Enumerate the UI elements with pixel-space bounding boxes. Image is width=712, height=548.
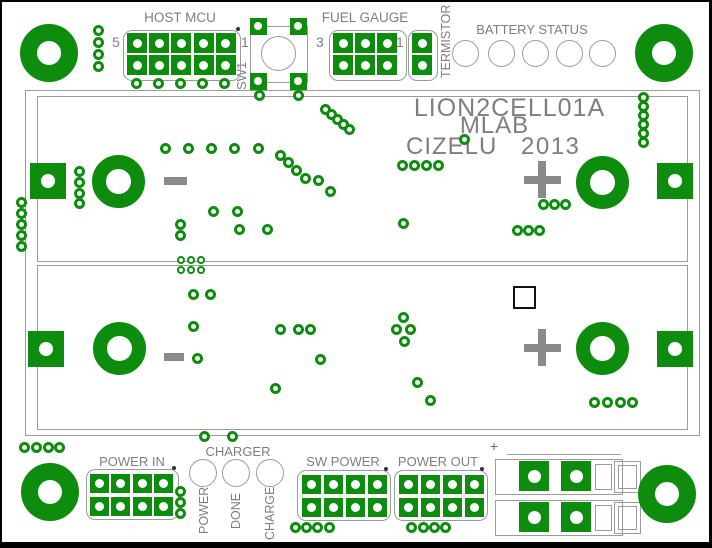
power-in-header-pad-hole <box>138 502 147 511</box>
host-mcu-header-pad <box>127 33 147 53</box>
smd-part-outline <box>513 286 536 309</box>
via <box>229 143 240 154</box>
edge-pad <box>657 331 693 367</box>
termistor-header-pad <box>412 55 432 75</box>
charger-label: CHARGER <box>194 445 282 459</box>
via <box>253 143 264 154</box>
cell2-minus-symbol <box>164 353 184 361</box>
via-small <box>187 256 195 264</box>
battery-status-led <box>556 40 583 67</box>
plus-v-bar <box>538 329 546 366</box>
power-out-header-pin1-dot <box>480 467 484 471</box>
power-in-header-pad <box>111 497 130 516</box>
host-mcu-header-pad-hole <box>133 61 142 70</box>
edge-pad <box>657 163 693 199</box>
via <box>93 37 104 48</box>
terminal-pad-hole <box>528 470 541 483</box>
via-small <box>197 266 205 274</box>
via <box>429 522 440 533</box>
via <box>160 143 171 154</box>
power-in-header-pad <box>154 474 173 493</box>
fuel-gauge-header-pad <box>355 55 375 75</box>
power-out-header-pad-hole <box>426 480 435 489</box>
sw1-pad <box>250 18 267 35</box>
via <box>549 199 560 210</box>
via <box>131 78 142 89</box>
power-out-header-pad-hole <box>448 480 457 489</box>
sw1-button <box>261 36 296 71</box>
via <box>199 431 210 442</box>
cell1-minus-symbol <box>164 177 187 185</box>
via-small <box>177 266 185 274</box>
mounting-hole <box>21 463 79 521</box>
sw-power-header-pad <box>324 498 343 517</box>
via <box>54 442 65 453</box>
charger-led <box>189 459 217 487</box>
host-mcu-header-pad-hole <box>155 39 164 48</box>
via <box>425 395 436 406</box>
via <box>262 224 273 235</box>
fuel-gauge-label: FUEL GAUGE <box>314 11 416 26</box>
via <box>175 486 186 497</box>
terminal-plus-label: + <box>490 439 498 454</box>
via <box>188 321 199 332</box>
via <box>208 206 219 217</box>
cell2-plus-symbol <box>524 329 561 366</box>
power-in-label: POWER IN <box>87 455 177 469</box>
via <box>325 186 336 197</box>
via <box>175 78 186 89</box>
edge-pad-hole <box>668 342 682 356</box>
via <box>615 397 626 408</box>
terminal-block-top-line <box>507 454 621 455</box>
termistor-label: TERMISTOR <box>439 5 453 78</box>
power-in-header-pad <box>90 497 109 516</box>
fuel-gauge-header-pad <box>333 33 353 53</box>
via <box>409 160 420 171</box>
via <box>538 199 549 210</box>
sw-power-header-pad <box>302 475 321 494</box>
via <box>523 225 534 236</box>
terminal-pad <box>561 461 591 491</box>
via <box>16 230 27 241</box>
power-out-header-pad <box>399 498 418 517</box>
edge-pad <box>28 331 64 367</box>
edge-pad-hole <box>39 342 53 356</box>
power-out-header-pad-hole <box>470 503 479 512</box>
termistor-header-pad-hole <box>418 39 427 48</box>
host-mcu-header-pin1-dot <box>236 27 240 31</box>
host-mcu-header-pad <box>216 33 236 53</box>
battery-status-led <box>452 40 479 67</box>
via <box>406 522 417 533</box>
via <box>254 90 265 101</box>
via <box>405 324 416 335</box>
host-mcu-header-pad-hole <box>177 61 186 70</box>
sw-power-header-pad-hole <box>351 480 360 489</box>
sw1-pad <box>290 18 307 35</box>
host-mcu-header-pad-hole <box>155 61 164 70</box>
via <box>175 497 186 508</box>
via <box>305 324 316 335</box>
sw-power-header-pad-hole <box>351 503 360 512</box>
fuel-gauge-header-pad-hole <box>339 39 348 48</box>
via <box>589 397 600 408</box>
via <box>74 166 85 177</box>
power-in-header-pad <box>111 474 130 493</box>
via <box>74 177 85 188</box>
host-mcu-header-pad-hole <box>133 39 142 48</box>
via <box>16 197 27 208</box>
fuel-gauge-header-pad <box>377 55 397 75</box>
sw1-pad-hole <box>254 22 262 30</box>
host-mcu-header-pad <box>149 33 169 53</box>
via <box>183 143 194 154</box>
via-small <box>197 256 205 264</box>
pcb-board-view: HOST MCU 5 1 SW1 FUEL GAUGE 3 1 TERMISTO… <box>0 0 712 548</box>
battery-status-led <box>488 40 515 67</box>
terminal-pad <box>519 502 549 532</box>
mounting-hole <box>635 24 693 82</box>
charger-led-power-label: POWER <box>197 487 211 534</box>
battery-status-led <box>522 40 549 67</box>
via <box>205 289 216 300</box>
host-mcu-header-pad <box>194 55 214 75</box>
charger-led <box>256 459 284 487</box>
fuel-gauge-header-pad <box>333 55 353 75</box>
edge-pad-hole <box>668 174 682 188</box>
sw1-pad-hole <box>294 77 302 85</box>
terminal-pad-hole <box>570 470 583 483</box>
via <box>43 442 54 453</box>
terminal-pad <box>561 502 591 532</box>
via <box>638 137 649 148</box>
via <box>275 324 286 335</box>
sw-power-header-pad <box>346 475 365 494</box>
sw-power-header-pad-hole <box>373 503 382 512</box>
host-mcu-header-pad <box>194 33 214 53</box>
power-in-header-pad <box>133 474 152 493</box>
mounting-hole <box>638 465 696 523</box>
sw-power-header-pad <box>346 498 365 517</box>
cell-terminal-pad <box>576 322 629 375</box>
via <box>188 289 199 300</box>
host-mcu-header-pad <box>171 55 191 75</box>
via <box>270 383 281 394</box>
sw1-pad-hole <box>294 22 302 30</box>
sw-power-header-pad-hole <box>307 480 316 489</box>
fuel-gauge-header-pad <box>377 33 397 53</box>
power-out-header-pad <box>465 475 484 494</box>
via <box>324 522 335 533</box>
termistor-header-pad-hole <box>418 61 427 70</box>
via <box>293 90 304 101</box>
terminal-block-slot <box>595 464 612 490</box>
power-in-header-pad <box>154 497 173 516</box>
via <box>560 199 571 210</box>
terminal-pad <box>519 461 549 491</box>
power-in-header-pad-hole <box>116 502 125 511</box>
via <box>397 160 408 171</box>
via <box>227 431 238 442</box>
power-out-header-pad-hole <box>470 480 479 489</box>
via <box>74 198 85 209</box>
via-small <box>177 256 185 264</box>
host-mcu-header-pad-hole <box>177 39 186 48</box>
sw-power-header-pad-hole <box>373 480 382 489</box>
host-mcu-header-pad <box>216 55 236 75</box>
edge-pad <box>30 163 66 199</box>
sw-power-header-pad-hole <box>329 503 338 512</box>
via <box>421 160 432 171</box>
mounting-hole <box>20 24 78 82</box>
sw-power-header-pin1-dot <box>384 467 388 471</box>
charger-led-charge-label: CHARGE <box>263 487 277 540</box>
via <box>433 160 444 171</box>
power-in-header-pad <box>133 497 152 516</box>
power-out-header-pad-hole <box>426 503 435 512</box>
via <box>16 241 27 252</box>
cell-terminal-pad <box>92 155 145 208</box>
author-text: CIZELU <box>406 135 497 159</box>
power-out-header-pad <box>443 475 462 494</box>
sw-power-header-pad <box>324 475 343 494</box>
via <box>175 508 186 519</box>
battery-status-led <box>589 40 616 67</box>
via-small <box>187 266 195 274</box>
host-mcu-header-pad-hole <box>221 61 230 70</box>
via <box>313 175 324 186</box>
via <box>93 61 104 72</box>
via <box>412 377 423 388</box>
terminal-block-slot <box>595 505 612 531</box>
host-mcu-label: HOST MCU <box>122 11 238 26</box>
via <box>312 522 323 533</box>
power-out-header-pad-hole <box>404 480 413 489</box>
termistor-header-pad <box>412 33 432 53</box>
via <box>16 208 27 219</box>
sw-power-header-pad-hole <box>329 480 338 489</box>
host-mcu-pin5-label: 5 <box>112 35 120 50</box>
power-out-header-pad <box>465 498 484 517</box>
host-mcu-header-pad-hole <box>199 39 208 48</box>
power-out-header-pad-hole <box>404 503 413 512</box>
sw1-pad <box>290 73 307 90</box>
sw-power-header-pad-hole <box>307 503 316 512</box>
via <box>219 78 230 89</box>
fuel-gauge-header-pad-hole <box>361 39 370 48</box>
power-out-header-pad <box>421 475 440 494</box>
power-out-header-pad <box>421 498 440 517</box>
power-out-header-pad-hole <box>448 503 457 512</box>
via <box>627 397 638 408</box>
terminal-pad-hole <box>570 511 583 524</box>
power-in-header-pin1-dot <box>172 466 176 470</box>
via <box>290 522 301 533</box>
power-in-header-pad-hole <box>159 479 168 488</box>
plus-v-bar <box>538 161 546 198</box>
host-mcu-header-pad <box>127 55 147 75</box>
fuel-gauge-header-pad-hole <box>383 39 392 48</box>
via <box>175 230 186 241</box>
sw-power-header-pad <box>368 475 387 494</box>
via <box>399 336 410 347</box>
sw-power-header-pad <box>302 498 321 517</box>
sw1-pad <box>250 73 267 90</box>
cell-terminal-pad <box>576 156 629 209</box>
via <box>512 225 523 236</box>
year-text: 2013 <box>521 135 580 159</box>
via <box>197 78 208 89</box>
via <box>301 522 312 533</box>
via <box>440 522 451 533</box>
via <box>19 442 30 453</box>
charger-led-done-label: DONE <box>229 493 243 529</box>
cell1-plus-symbol <box>524 161 561 198</box>
via <box>291 165 302 176</box>
via <box>398 312 409 323</box>
via <box>232 206 243 217</box>
host-mcu-header-pad-hole <box>221 39 230 48</box>
power-in-header-pad-hole <box>138 479 147 488</box>
host-mcu-header-pad <box>149 55 169 75</box>
via <box>602 397 613 408</box>
edge-pad-hole <box>41 174 55 188</box>
power-out-header-pad <box>443 498 462 517</box>
via <box>31 442 42 453</box>
sw1-pad-hole <box>254 77 262 85</box>
via <box>206 143 217 154</box>
via <box>153 78 164 89</box>
via <box>418 522 429 533</box>
terminal-pad-hole <box>528 511 541 524</box>
sw-power-header-pad <box>368 498 387 517</box>
power-in-header-pad-hole <box>95 502 104 511</box>
via <box>315 354 326 365</box>
cell-terminal-pad <box>93 322 146 375</box>
via <box>344 124 355 135</box>
via <box>93 49 104 60</box>
via <box>534 225 545 236</box>
fuel-gauge-header-pad-hole <box>339 61 348 70</box>
fuel-gauge-pin3-label: 3 <box>316 35 324 50</box>
via <box>300 173 311 184</box>
sw-power-label: SW POWER <box>298 455 388 469</box>
fuel-gauge-header-pad <box>355 33 375 53</box>
host-mcu-header-pad-hole <box>199 61 208 70</box>
via <box>175 219 186 230</box>
charger-led <box>222 459 250 487</box>
via <box>192 353 203 364</box>
via <box>74 188 85 199</box>
terminal-block-pin-inner <box>618 465 637 489</box>
power-in-header-pad-hole <box>95 479 104 488</box>
power-out-label: POWER OUT <box>393 455 483 469</box>
via <box>398 218 409 229</box>
via <box>293 324 304 335</box>
power-in-header-pad-hole <box>159 502 168 511</box>
terminal-block-pin-inner <box>618 506 637 530</box>
power-in-header-pad-hole <box>116 479 125 488</box>
via <box>391 324 402 335</box>
host-mcu-header-pad <box>171 33 191 53</box>
via <box>93 25 104 36</box>
host-mcu-pin1-label: 1 <box>241 35 249 50</box>
via <box>16 219 27 230</box>
power-out-header-pad <box>399 475 418 494</box>
battery-status-label: BATTERY STATUS <box>472 23 592 37</box>
via <box>234 224 245 235</box>
power-in-header-pad <box>90 474 109 493</box>
fuel-gauge-header-pad-hole <box>361 61 370 70</box>
via <box>459 134 470 145</box>
fuel-gauge-header-pad-hole <box>383 61 392 70</box>
